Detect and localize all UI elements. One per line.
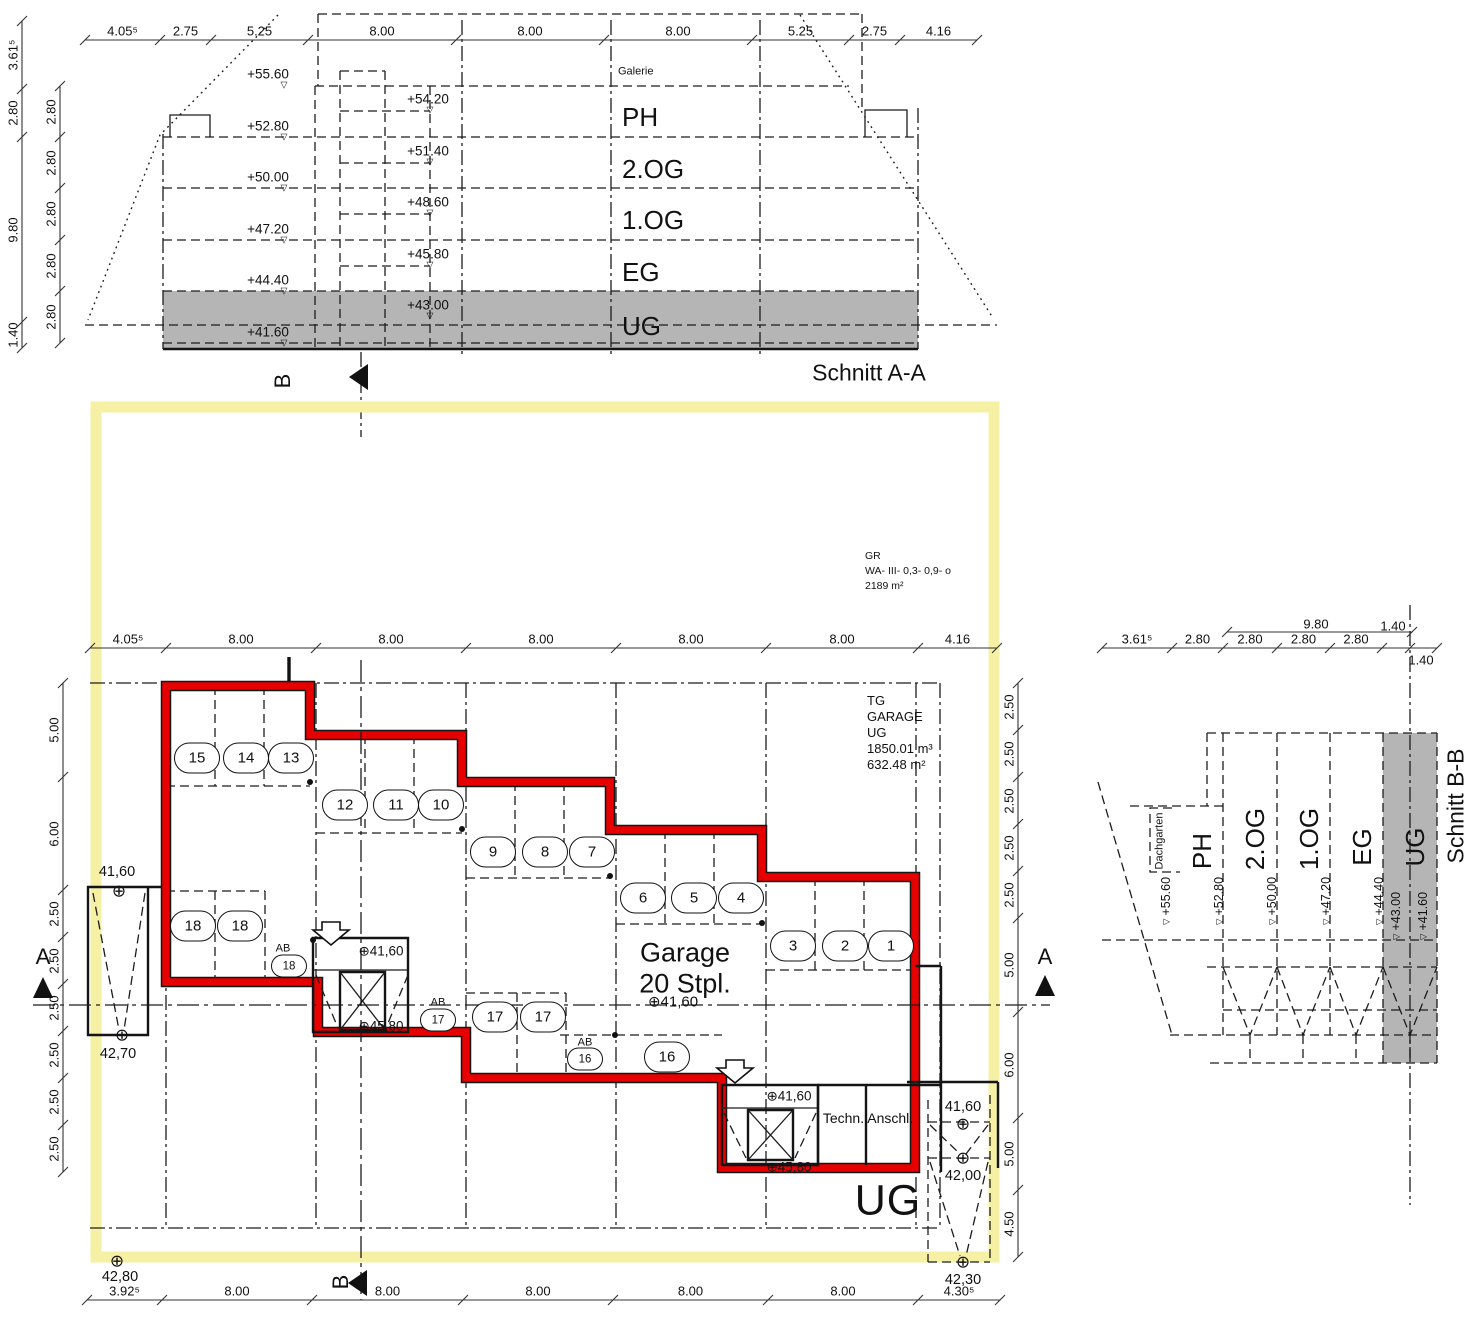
dimension-label: 8.00 bbox=[678, 633, 703, 646]
dimension-label: 5.25 bbox=[247, 25, 272, 38]
ab-stall-label: AB bbox=[276, 944, 291, 955]
dimension-label: 4.05⁵ bbox=[113, 633, 144, 646]
drawing-linework bbox=[0, 0, 1477, 1321]
level-triangle-icon: ▽ bbox=[1321, 919, 1332, 926]
elevation-value: +43.00 bbox=[1389, 892, 1403, 931]
zoning-line: 2189 m² bbox=[865, 579, 951, 594]
parking-stall-number: 1 bbox=[868, 931, 914, 962]
dimension-label: 8.00 bbox=[528, 633, 553, 646]
dimension-label: 2.50 bbox=[1003, 788, 1016, 813]
dimension-label: 8.00 bbox=[525, 1285, 550, 1298]
parking-stall-number: 17 bbox=[520, 1002, 566, 1033]
elevation-label-rotated: ▽+50.00 bbox=[1265, 877, 1279, 925]
floor-label: 1.OG bbox=[1296, 808, 1322, 870]
parking-stall-number: 16 bbox=[644, 1042, 690, 1073]
level-triangle-icon: ▽ bbox=[281, 81, 288, 90]
elevation-label-rotated: ▽+43.00 bbox=[1389, 892, 1403, 940]
dimension-label: 4.16 bbox=[926, 25, 951, 38]
parking-stall-number: 12 bbox=[322, 790, 368, 821]
dimension-label: 2.80 bbox=[1343, 633, 1368, 646]
dimension-label: 1.40 bbox=[1408, 654, 1433, 667]
galerie-label: Galerie bbox=[618, 67, 653, 78]
dimension-label: 2.50 bbox=[1003, 741, 1016, 766]
dimension-label: 8.00 bbox=[378, 633, 403, 646]
dimension-label: 9.80 bbox=[1303, 618, 1328, 631]
dimension-label: 2.50 bbox=[1003, 882, 1016, 907]
zoning-line: GR bbox=[865, 549, 951, 564]
dimension-label: 8.00 bbox=[369, 25, 394, 38]
dimension-label: 4.50 bbox=[1003, 1211, 1016, 1236]
dimension-label: 5.00 bbox=[1003, 1141, 1016, 1166]
level-marker-icon: ⊕ bbox=[112, 883, 126, 900]
elevation-value: +41.60 bbox=[1416, 892, 1430, 931]
parking-stall-number: 17 bbox=[472, 1002, 518, 1033]
marker-b-label: B bbox=[272, 374, 294, 389]
dimension-label: 4.16 bbox=[945, 633, 970, 646]
elevation-value: +47.20 bbox=[1319, 877, 1333, 916]
dimension-label: 2.50 bbox=[48, 995, 61, 1020]
parking-stall-number: 2 bbox=[822, 931, 868, 962]
garage-info-line: TG bbox=[867, 693, 933, 709]
stair-level-label: ⊕41,60 bbox=[766, 1089, 811, 1103]
stair-level-label: ⊕45,80 bbox=[358, 1019, 403, 1033]
level-triangle-icon: ▽ bbox=[427, 158, 434, 167]
garage-info-line: GARAGE bbox=[867, 709, 933, 725]
floor-label: UG bbox=[1402, 828, 1428, 867]
dimension-label: 5.00 bbox=[48, 717, 61, 742]
dimension-label: 8.00 bbox=[830, 1285, 855, 1298]
parking-stall-number: 4 bbox=[718, 883, 764, 914]
elevation-label-rotated: ▽+55.60 bbox=[1159, 877, 1173, 925]
elevation-label-rotated: ▽+41.60 bbox=[1416, 892, 1430, 940]
level-triangle-icon: ▽ bbox=[281, 236, 288, 245]
dimension-label: 2.80 bbox=[1185, 633, 1210, 646]
spot-elevation-label: 42,70 bbox=[100, 1047, 136, 1062]
garage-info-line: 1850.01 m³ bbox=[867, 741, 933, 757]
dimension-label: 1.40 bbox=[1380, 620, 1405, 633]
stair-level-label: ⊕41,60 bbox=[358, 944, 403, 958]
dimension-label: 4.05⁵ bbox=[107, 25, 138, 38]
dimension-label: 3.61⁵ bbox=[7, 40, 20, 71]
level-triangle-icon: ▽ bbox=[1391, 934, 1402, 941]
section-marker-a-icon bbox=[1035, 975, 1055, 996]
ab-stall-number: 16 bbox=[567, 1048, 603, 1071]
dimension-label: 2.80 bbox=[45, 304, 58, 329]
dimension-label: 2.80 bbox=[45, 253, 58, 278]
level-triangle-icon: ▽ bbox=[427, 106, 434, 115]
dimension-label: 8.00 bbox=[678, 1285, 703, 1298]
ab-stall-label: AB bbox=[431, 998, 446, 1009]
parking-stall-number: 6 bbox=[620, 883, 666, 914]
marker-a-label: A bbox=[36, 946, 51, 968]
parking-stall-number: 11 bbox=[373, 790, 419, 821]
dimension-label: 6.00 bbox=[1003, 1052, 1016, 1077]
parking-stall-number: 18 bbox=[170, 911, 216, 942]
elevation-label-rotated: ▽+52.80 bbox=[1212, 877, 1226, 925]
zoning-line: WA- III- 0,3- 0,9- o bbox=[865, 564, 951, 579]
dimension-label: 8.00 bbox=[375, 1285, 400, 1298]
garage-info-line: 632.48 m² bbox=[867, 757, 933, 773]
dimension-label: 2.50 bbox=[1003, 694, 1016, 719]
drawing-sheet: 4.05⁵2.755.258.008.008.005.252.754.163.6… bbox=[0, 0, 1477, 1321]
dimension-label: 2.50 bbox=[1003, 835, 1016, 860]
parking-stall-number: 14 bbox=[223, 743, 269, 774]
floor-label: PH bbox=[622, 104, 658, 130]
level-triangle-icon: ▽ bbox=[427, 209, 434, 218]
garage-info-line: UG bbox=[867, 725, 933, 741]
spot-elevation-label: 41,60 bbox=[945, 1100, 981, 1115]
dimension-label: 2.80 bbox=[1291, 633, 1316, 646]
dimension-label: 2.75 bbox=[173, 25, 198, 38]
level-triangle-icon: ▽ bbox=[1161, 919, 1172, 926]
spot-elevation-label: 42,80 bbox=[102, 1270, 138, 1285]
floor-label: EG bbox=[622, 259, 660, 285]
ab-stall-number: 17 bbox=[420, 1009, 456, 1032]
level-triangle-icon: ▽ bbox=[281, 287, 288, 296]
floor-label: PH bbox=[1189, 833, 1215, 869]
ug-plan-label: UG bbox=[855, 1180, 922, 1223]
parking-stall-number: 7 bbox=[569, 837, 615, 868]
dimension-label: 3.92⁵ bbox=[109, 1285, 140, 1298]
floor-label: 2.OG bbox=[1242, 808, 1268, 870]
dimension-label: 2.80 bbox=[45, 99, 58, 124]
dimension-label: 5.25 bbox=[788, 25, 813, 38]
level-triangle-icon: ▽ bbox=[1374, 919, 1385, 926]
dimension-lines bbox=[17, 16, 1442, 1305]
dimension-label: 3.61⁵ bbox=[1122, 633, 1153, 646]
dimension-label: 1.40 bbox=[7, 322, 20, 347]
level-triangle-icon: ▽ bbox=[427, 261, 434, 270]
dimension-label: 2.50 bbox=[48, 1089, 61, 1114]
dimension-label: 2.75 bbox=[862, 25, 887, 38]
dimension-label: 8.00 bbox=[517, 25, 542, 38]
section-aa-caption: Schnitt A-A bbox=[812, 362, 926, 385]
parking-stall-number: 9 bbox=[470, 837, 516, 868]
ramp-arrow-icon bbox=[313, 922, 349, 945]
dimension-label: 2.80 bbox=[7, 100, 20, 125]
elevation-value: +50.00 bbox=[1265, 877, 1279, 916]
level-marker-icon: ⊕ bbox=[110, 1253, 124, 1270]
floor-label: 1.OG bbox=[622, 207, 684, 233]
dimension-label: 5.00 bbox=[1003, 952, 1016, 977]
dimension-label: 8.00 bbox=[665, 25, 690, 38]
dimension-label: 2.50 bbox=[48, 901, 61, 926]
level-triangle-icon: ▽ bbox=[281, 339, 288, 348]
dimension-label: 2.80 bbox=[45, 150, 58, 175]
marker-b-label: B bbox=[330, 1275, 352, 1290]
dachgarten-label: Dachgarten bbox=[1155, 813, 1166, 870]
level-marker-icon: ⊕ bbox=[956, 1150, 970, 1167]
parking-stall-number: 3 bbox=[770, 931, 816, 962]
spot-elevation-label: 42,00 bbox=[945, 1169, 981, 1184]
dimension-label: 8.00 bbox=[228, 633, 253, 646]
parking-stall-number: 13 bbox=[268, 743, 314, 774]
floor-label: EG bbox=[1349, 828, 1375, 866]
elevation-label-rotated: ▽+47.20 bbox=[1319, 877, 1333, 925]
floor-label: 2.OG bbox=[622, 156, 684, 182]
dimension-label: 2.50 bbox=[48, 1136, 61, 1161]
level-triangle-icon: ▽ bbox=[281, 184, 288, 193]
garage-level-label: ⊕41,60 bbox=[648, 995, 698, 1010]
stair-level-label: ⊕45,80 bbox=[766, 1160, 811, 1174]
dimension-label: 8.00 bbox=[224, 1285, 249, 1298]
parking-stall-number: 10 bbox=[418, 790, 464, 821]
level-triangle-icon: ▽ bbox=[1418, 934, 1429, 941]
ab-stall-number: 18 bbox=[271, 955, 307, 978]
level-triangle-icon: ▽ bbox=[427, 312, 434, 321]
level-triangle-icon: ▽ bbox=[1267, 919, 1278, 926]
level-marker-icon: ⊕ bbox=[956, 1254, 970, 1271]
elevation-value: +44.40 bbox=[1372, 877, 1386, 916]
spot-elevation-label: 41,60 bbox=[99, 865, 135, 880]
level-triangle-icon: ▽ bbox=[1214, 919, 1225, 926]
elevation-label-rotated: ▽+44.40 bbox=[1372, 877, 1386, 925]
parking-stall-number: 15 bbox=[174, 743, 220, 774]
parking-stall-number: 18 bbox=[217, 911, 263, 942]
level-triangle-icon: ▽ bbox=[281, 133, 288, 142]
zoning-text-block: GR WA- III- 0,3- 0,9- o 2189 m² bbox=[865, 549, 951, 594]
garage-info-block: TG GARAGE UG 1850.01 m³ 632.48 m² bbox=[867, 693, 933, 773]
garage-title: Garage bbox=[640, 940, 730, 967]
parking-stall-number: 5 bbox=[671, 883, 717, 914]
dimension-label: 8.00 bbox=[829, 633, 854, 646]
dimension-label: 2.80 bbox=[1237, 633, 1262, 646]
level-marker-icon: ⊕ bbox=[956, 1116, 970, 1133]
spot-elevation-label: 42,30 bbox=[945, 1273, 981, 1288]
section-bb-caption: Schnitt B-B bbox=[1445, 748, 1468, 863]
dimension-label: 6.00 bbox=[48, 821, 61, 846]
marker-a-label: A bbox=[1038, 946, 1053, 968]
elevation-value: +55.60 bbox=[1159, 877, 1173, 916]
tech-room-label: Techn. Anschl. bbox=[823, 1111, 913, 1125]
floor-label: UG bbox=[622, 313, 661, 339]
dimension-label: 2.80 bbox=[45, 201, 58, 226]
dimension-label: 2.50 bbox=[48, 1042, 61, 1067]
level-marker-icon: ⊕ bbox=[115, 1027, 129, 1044]
parking-stall-number: 8 bbox=[522, 837, 568, 868]
dimension-label: 9.80 bbox=[7, 217, 20, 242]
elevation-value: +52.80 bbox=[1212, 877, 1226, 916]
